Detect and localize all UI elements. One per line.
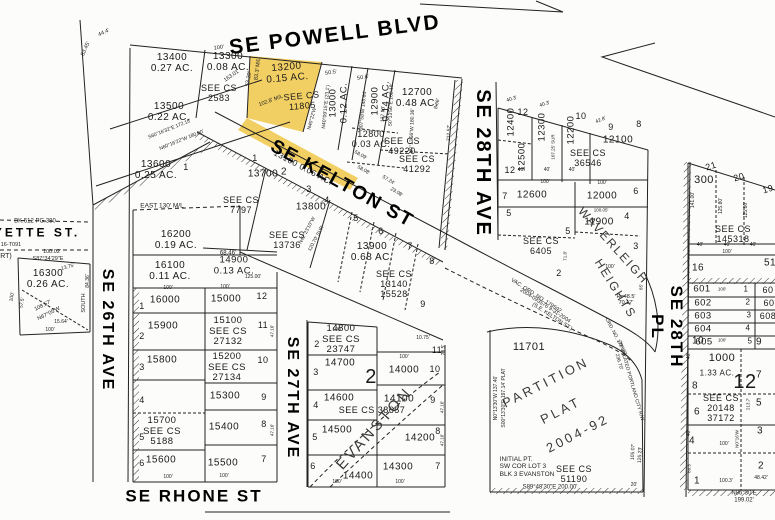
lot-8: 8 [429,256,435,266]
dim: 137.93' [381,106,387,122]
dim: 71.8' [562,251,567,261]
dim: 100' [220,285,229,291]
lot-1: 1 [694,475,700,486]
dim: 40' [518,168,525,174]
cs-13140-15528: SEE CS 13140 15528 [376,269,412,299]
parcel-608[interactable]: 608 [760,311,775,321]
parcel-13700[interactable]: 13700 [248,168,278,179]
lot-6: 6 [310,461,316,471]
lot-10: 10 [692,335,704,346]
parcel-12700[interactable]: 12700 0.48 AC. [396,87,438,109]
parcel-14300[interactable]: 14300 [383,461,413,472]
parcel-12400[interactable]: 12400 [507,108,518,137]
parcel-60x[interactable]: 60 [762,285,773,295]
dim: 100' [219,474,228,480]
lot-4: 4 [324,195,330,205]
dim: 100' [332,480,341,486]
lot-3: 3 [757,425,763,436]
lot-1: 1 [183,162,189,172]
parcel-12600[interactable]: 12600 [517,189,547,200]
dim: 125.00' [245,275,261,281]
parcel-16200[interactable]: 16200 0.19 AC. [155,229,197,251]
cs-6405: SEE CS 6405 [523,236,559,256]
lot-10: 10 [429,364,440,374]
lot-11: 11 [258,320,268,330]
dim: 100' [45,328,54,334]
dim: 15.64' [54,320,67,326]
dim: 107.25' SUR [550,134,555,159]
lot-12: 12 [256,291,267,301]
parcel-13400[interactable]: 13400 0.27 AC. [151,52,193,74]
lot-5: 5 [565,226,571,236]
dim: 40' [724,243,731,249]
dim: SOUTH [81,293,87,312]
lot-4: 4 [746,325,751,334]
lot-6: 6 [378,226,384,236]
parcel-15600[interactable]: 15600 [146,454,176,465]
lot-3: 3 [306,184,312,194]
lot-5: 5 [756,397,762,408]
street-rhone: SE RHONE ST [125,486,262,505]
block-number-12: 12 [733,371,756,393]
street-26th-ave: SE 26TH AVE [98,269,116,391]
dim: 100' [540,180,549,186]
parcel-604[interactable]: 604 [694,325,711,336]
parcel-15900[interactable]: 15900 [148,320,178,331]
dim: 100' [597,181,606,187]
parcel-13800[interactable]: 13800 [296,201,326,212]
lot-2: 2 [556,268,562,278]
cs-145318: SEE CS 145318 [712,224,754,244]
bearing: S87°34'29"E [33,256,64,262]
lot-9: 9 [261,392,267,402]
street-28th-ave: SE 28TH AVE [472,89,494,237]
lot-5: 5 [312,432,318,442]
lot-2: 2 [139,331,145,341]
parcel-15000[interactable]: 15000 [211,293,241,304]
parcel-1000[interactable]: 1000 [709,352,735,364]
lot-10: 10 [575,111,586,121]
dim: 100' [163,286,172,292]
dim: 125.80' [744,202,750,218]
lot-10: 10 [257,355,268,365]
dim: 125.23' [638,447,644,464]
cs-36546: SEE CS 36546 [570,148,606,168]
bearing: S00°13'30"E 197.14' PLAT [502,368,508,427]
dim: 100' [605,265,614,271]
lot-2: 2 [746,299,751,308]
plat-map: SE POWELL BLVD SE KELTON ST SE 26TH AVE … [0,0,775,520]
lot-12: 12 [504,165,515,175]
lot-12: 12 [517,107,528,117]
parcel-12100[interactable]: 12100 [603,134,633,145]
parcel-14000[interactable]: 14000 [389,364,419,375]
lot-1: 1 [252,153,258,163]
dim: 84.36' [86,274,92,287]
lot-3: 3 [747,312,752,321]
initial-point-note: INITIAL PT. SW COR LOT 3 BLK 3 EVANSTON [500,456,555,478]
dim: 47.16' [439,434,444,446]
dim: 125.80' [719,198,725,214]
dim: 40' [569,168,576,174]
lot-51: 51 [764,257,775,268]
parcel-60x[interactable]: 60 [763,298,774,308]
dim: 100' [399,355,408,361]
dim: 141.00' [691,192,697,208]
lot-2: 2 [281,166,287,177]
lot-8: 8 [692,380,698,391]
lot-4: 4 [689,435,695,446]
lot-7: 7 [407,241,413,251]
parcel-12300[interactable]: 12300 [538,113,549,142]
lot-7: 7 [756,369,762,380]
lot-6: 6 [139,458,145,468]
bearing: S89°48'30"E 200.00' [523,485,578,492]
cs-51190: SEE CS 51190 [556,464,592,484]
dim: 47.16' [269,325,274,337]
dim: 40' [750,243,757,249]
parcel-602[interactable]: 602 [694,299,711,310]
cs-41292: SEE CS 41292 [399,154,435,174]
street-lafayette-partial: YETTE ST. [0,226,80,239]
street-28th-pl: SE 28TH PL [648,273,686,381]
parcel-15300[interactable]: 15300 [210,390,240,401]
dim: 100.02' [43,249,61,255]
parcel-13600[interactable]: 13600 0.25 AC. [135,159,177,181]
dim: 68.46' [220,251,236,258]
dim: 100' [332,328,341,334]
parcel-1000-acreage: 1.33 AC. [700,370,735,379]
lot-6: 6 [633,186,639,196]
parcel-13300[interactable]: 13300 0.08 AC. [207,51,249,73]
parcel-601[interactable]: 601 [693,285,710,296]
lot-4: 4 [139,395,145,405]
lot-3: 3 [633,241,639,251]
lot-4: 4 [624,211,630,221]
parcel-15700[interactable]: 15700 SEE CS 5188 [143,416,181,448]
dim: 100.05' [594,207,609,212]
cs-7797: SEE CS 7797 [223,195,259,215]
parcel-15500[interactable]: 15500 [208,457,238,468]
lot-9: 9 [756,336,762,347]
dim: 60.5' [686,463,691,473]
cs-20148-37172: SEE CS 20148 37172 [703,393,739,423]
lot-16: 16 [692,262,704,273]
lot-5: 5 [139,432,145,442]
parcel-16000[interactable]: 16000 [150,294,180,305]
parcel-15400[interactable]: 15400 [209,421,239,432]
dim-east-130: EAST 130' M/L [140,202,183,209]
parcel-603[interactable]: 603 [694,312,711,323]
dim: 28.5' [442,345,448,356]
lot-1: 1 [139,301,145,311]
lot-3: 3 [139,362,145,372]
dim: 47.16' [269,424,274,436]
block-number-2: 2 [365,366,377,388]
street-27th-ave: SE 27TH AVE [283,337,301,459]
dim: 40' [697,243,704,249]
parcel-300[interactable]: 300 [694,174,714,186]
dim: 100' [718,286,726,291]
dim: 100' [395,480,404,486]
dim: R=48.5' 70.17' [617,294,636,306]
lot-8: 8 [636,119,642,129]
deed-reference: BK.512 PG.380 [14,219,56,226]
lot-2: 2 [314,339,320,349]
lot-5: 5 [353,213,359,223]
dim: 10.75' [416,336,429,342]
cs-2583: SEE CS 2583 [201,83,237,103]
dim: 100' [718,337,726,342]
parcel-15200[interactable]: 15200 SEE CS 27134 [208,352,246,384]
lot-9: 9 [430,395,436,405]
parcel-15100[interactable]: 15100 SEE CS 27132 [209,316,247,348]
dim: 40' [544,168,551,174]
lot-9: 9 [608,122,614,132]
dim: 48.42' [754,476,767,482]
parcel-14600[interactable]: 14600 [324,392,354,403]
lot-9: 9 [420,299,426,309]
parcel-14500[interactable]: 14500 [322,424,352,435]
bearing: N0°16'W [734,430,739,448]
dim: 47.16' [439,401,444,413]
dim: 100' [719,442,728,448]
lot-4: 4 [313,400,319,410]
lot-7: 7 [435,461,441,471]
dim: 100.3' [719,479,732,485]
parcel-11701[interactable]: 11701 [513,341,545,353]
dim: 20' [631,483,638,489]
lot-8: 8 [261,419,267,429]
map-reference: 16-T091 [1,242,22,248]
parcel-16100[interactable]: 16100 0.11 AC. [149,260,191,282]
lot-2: 2 [758,460,764,471]
dim: 40' [687,353,693,360]
lot-6: 6 [694,406,700,417]
dim: 212.52' [447,125,453,141]
lot-5: 5 [506,208,512,218]
lot-7: 7 [261,454,267,464]
lot-5: 5 [748,338,753,347]
bearing: N86°30'E 199.02' [729,490,760,503]
dim: 100' [722,250,731,256]
dim: 100' [163,475,172,481]
street-lafayette-cut: RT) [0,253,12,261]
lot-3: 3 [313,367,319,377]
lot-7: 7 [502,191,508,201]
dim: 40' [687,430,693,437]
parcel-14200[interactable]: 14200 [405,432,435,443]
parcel-14700[interactable]: 14700 [325,357,355,368]
parcel-12000[interactable]: 12000 [587,190,617,201]
parcel-13200-selected[interactable]: 13200 0.15 AC. [265,60,309,86]
dim: 85' [638,284,643,290]
parcel-13900[interactable]: 13900 0.68 AC. [351,241,393,263]
parcel-15800[interactable]: 15800 [147,354,177,365]
bearing: N0°13'30"W 137.46' [494,376,500,421]
dim: 213.7' [745,398,750,410]
lot-1: 1 [744,286,749,295]
